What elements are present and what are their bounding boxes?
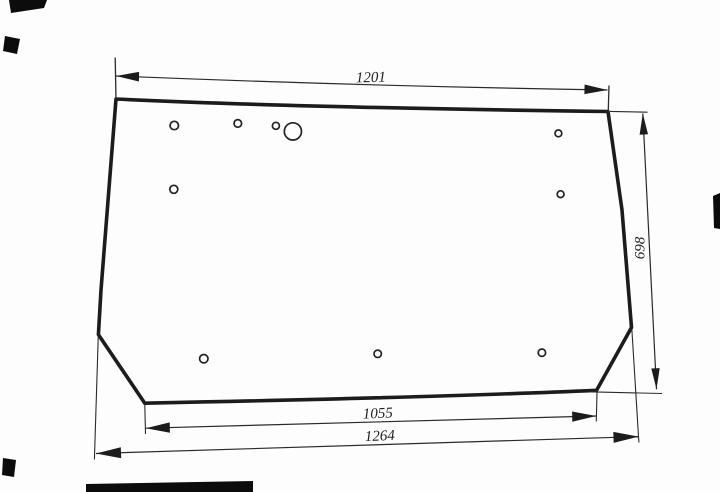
svg-text:1055: 1055: [362, 405, 393, 422]
svg-text:1201: 1201: [356, 70, 386, 87]
svg-text:1264: 1264: [364, 428, 395, 445]
svg-text:698: 698: [632, 236, 648, 259]
